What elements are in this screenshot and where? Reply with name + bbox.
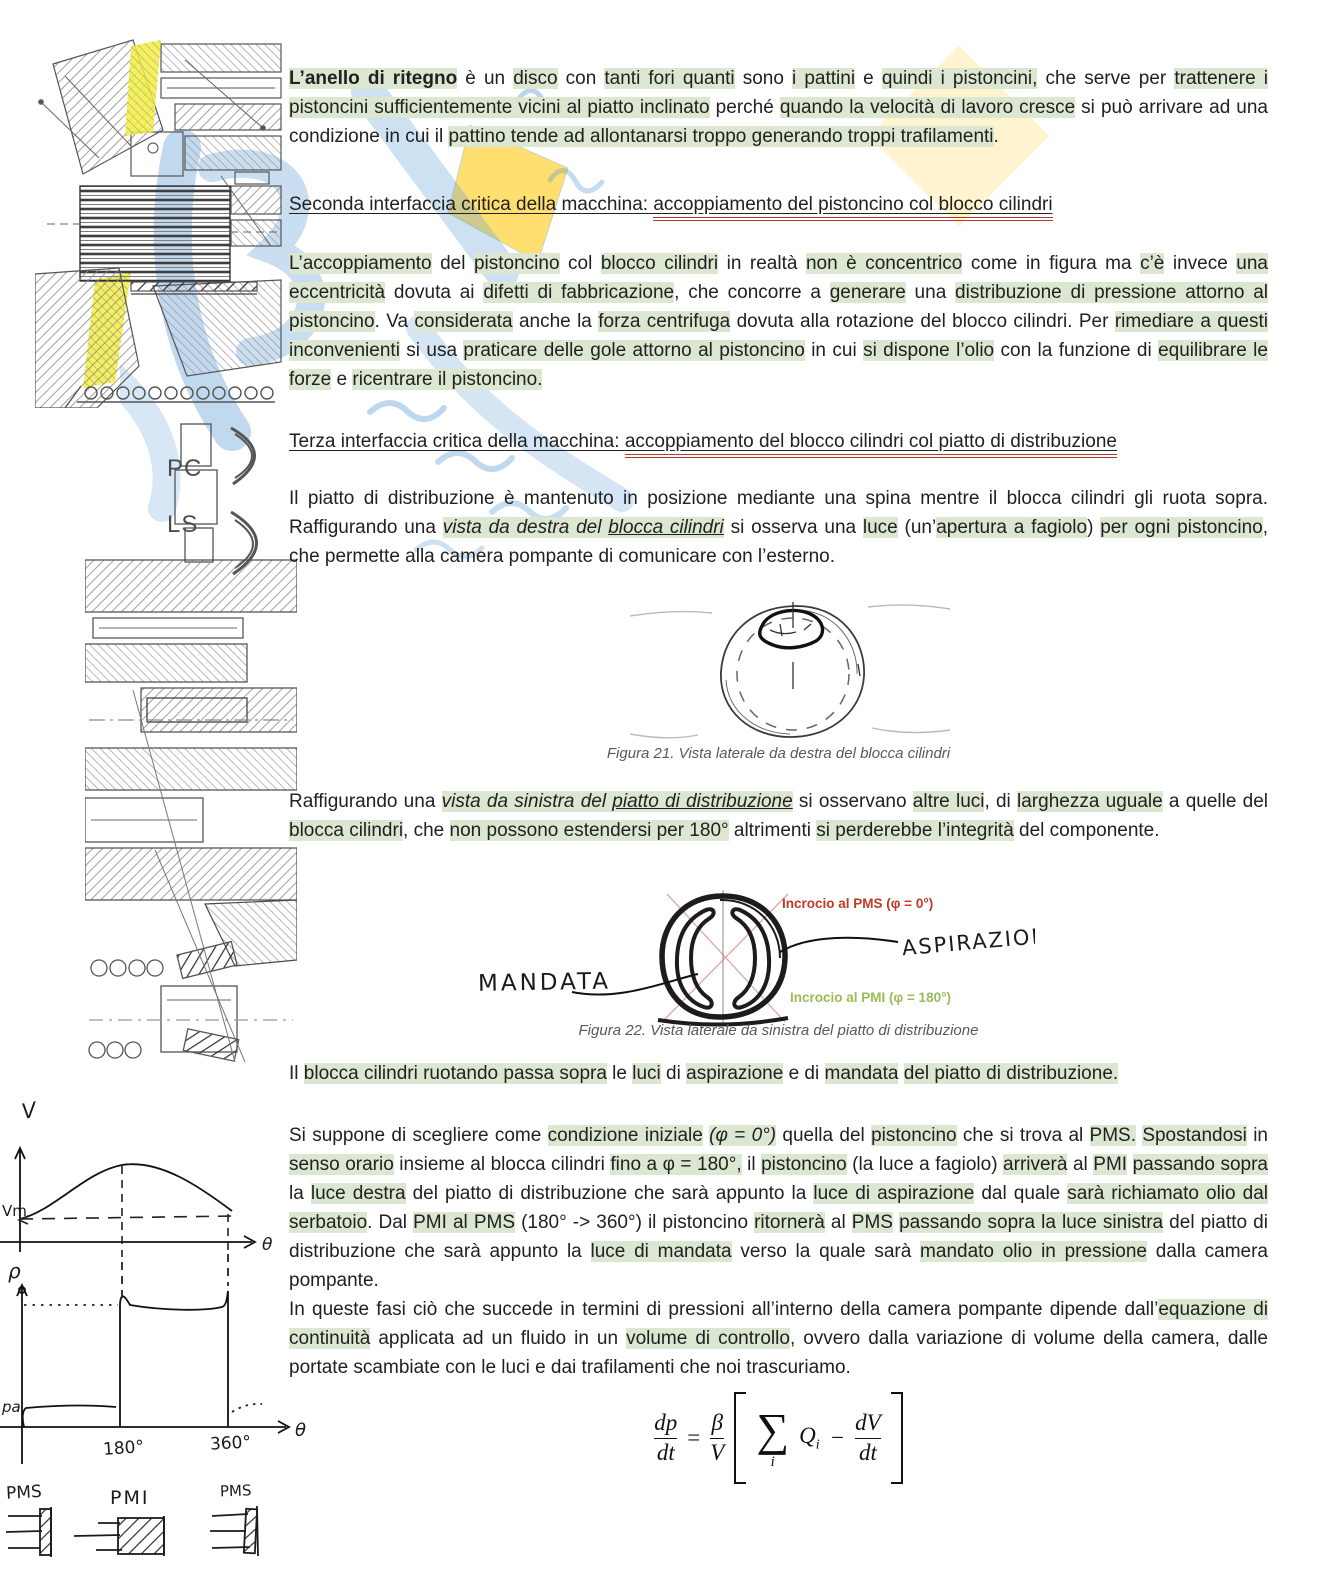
label-ls: LS <box>167 511 198 538</box>
heading-pre: Seconda interfaccia critica della macchi… <box>289 194 653 215</box>
paragraph-vista-sinistra: Raffigurando una vista da sinistra del p… <box>289 787 1268 845</box>
paragraph-condizione-iniziale: Si suppone di scegliere come condizione … <box>289 1121 1268 1295</box>
beta-V-fraction: βV <box>710 1411 724 1464</box>
paragraph-equazione-continuita: In queste fasi ciò che succede in termin… <box>289 1295 1268 1382</box>
theta-label-1: θ <box>262 1235 273 1255</box>
vm-label: Vm <box>2 1202 27 1220</box>
summation: ∑i <box>756 1407 789 1470</box>
deg-180-label: 180° <box>102 1437 144 1460</box>
heading-red-underlined: accoppiamento del blocco cilindri col pi… <box>625 431 1117 458</box>
continuity-equation: dpdt = βV ∑i Qi − dVdt <box>289 1392 1268 1484</box>
v-axis-title: V <box>20 1097 40 1123</box>
incrocio-pms-note: Incrocio al PMS (φ = 0°) <box>782 896 933 911</box>
pa-label: pa <box>1 1398 21 1416</box>
pms-left-label: PMS <box>6 1482 43 1504</box>
pump-cross-section-drawing <box>35 36 283 413</box>
deg-360-label: 360° <box>210 1432 252 1454</box>
label-pc: PC <box>167 455 202 482</box>
dp-dt-fraction: dpdt <box>654 1411 677 1464</box>
dV-dt-fraction: dVdt <box>855 1411 881 1464</box>
equals-sign: = <box>687 1425 700 1451</box>
heading-red-underlined: accoppiamento del pistoncino col blocco … <box>653 194 1052 221</box>
heading-seconda-interfaccia: Seconda interfaccia critica della macchi… <box>289 190 1268 219</box>
figure-21-caption: Figura 21. Vista laterale da destra del … <box>289 745 1268 762</box>
paragraph-blocca-ruotando: Il blocca cilindri ruotando passa sopra … <box>289 1059 1268 1088</box>
volume-pressure-graphs: V Vm θ ρ <box>0 1092 312 1483</box>
paragraph-anello-ritegno: L’anello di ritegno è un disco con tanti… <box>289 64 1268 151</box>
paragraph-piatto-distribuzione: Il piatto di distribuzione è mantenuto i… <box>289 484 1268 571</box>
mandata-label: MANDATA <box>478 969 611 997</box>
figure-22-sketch: MANDATA ASPIRAZIONE Incrocio al PMS (φ =… <box>470 882 1035 1037</box>
pmi-label: PMI <box>110 1487 149 1509</box>
figure-21-sketch <box>630 594 950 754</box>
incrocio-pmi-note: Incrocio al PMI (φ = 180°) <box>790 990 951 1005</box>
paragraph-accoppiamento-pistoncino: L’accoppiamento del pistoncino col blocc… <box>289 249 1268 394</box>
heading-terza-interfaccia: Terza interfaccia critica della macchina… <box>289 427 1268 456</box>
pms-right-label: PMS <box>220 1481 252 1500</box>
flow-term: Qi <box>799 1423 820 1454</box>
figure-22-caption: Figura 22. Vista laterale da sinistra de… <box>289 1022 1268 1039</box>
aspirazione-label: ASPIRAZIONE <box>901 922 1035 960</box>
piston-position-sketches: PMS PMI PMS <box>0 1478 280 1583</box>
minus-sign: − <box>830 1425 846 1451</box>
left-bracket <box>734 1392 746 1484</box>
heading-pre: Terza interfaccia critica della macchina… <box>289 431 625 452</box>
rho-axis-title: ρ <box>8 1259 21 1283</box>
shaft-section-drawing: PC LS <box>85 420 297 1067</box>
right-bracket <box>891 1392 903 1484</box>
